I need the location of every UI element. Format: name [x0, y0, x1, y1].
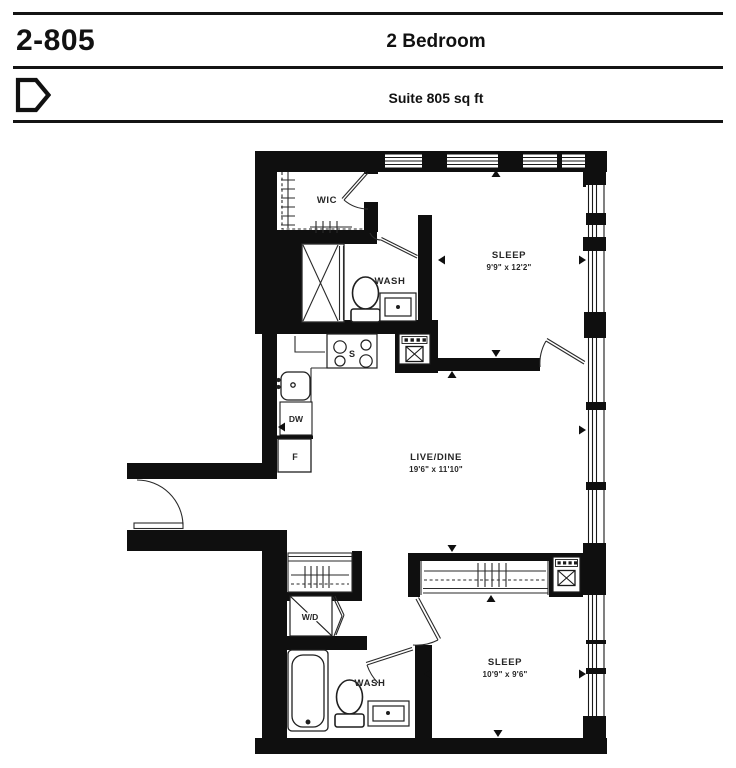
mech-unit-kitchen-icon [399, 334, 430, 364]
appliance-label-fridge: F [292, 452, 298, 462]
room-dims-livedine: 19'6" x 11'10" [409, 465, 463, 474]
linework [134, 172, 585, 684]
bathtub-icon [288, 650, 328, 731]
room-label-sleep1: SLEEP [492, 250, 526, 261]
sink-icon-lower [368, 701, 409, 726]
room-label-wash-lower: WASH [355, 678, 386, 689]
room-dims-sleep2: 10'9" x 9'6" [483, 670, 528, 679]
room-label-sleep2: SLEEP [488, 657, 522, 668]
kitchen-sink-icon [277, 372, 310, 400]
walls [127, 151, 607, 754]
room-dims-sleep1: 9'9" x 12'2" [487, 263, 532, 272]
sink-icon-upper [380, 293, 416, 321]
room-label-wic: WIC [317, 195, 337, 206]
appliance-label-dishwasher: DW [289, 414, 304, 424]
appliance-label-stove: S [349, 349, 355, 359]
room-label-wash-upper: WASH [375, 276, 406, 287]
room-label-livedine: LIVE/DINE [410, 452, 462, 463]
mech-unit-sleep2-icon [553, 557, 580, 592]
appliance-label-washer-dryer: W/D [302, 612, 319, 622]
floor-plan: WIC WASH SLEEP 9'9" x 12'2" LIVE/DINE 19… [0, 0, 736, 768]
